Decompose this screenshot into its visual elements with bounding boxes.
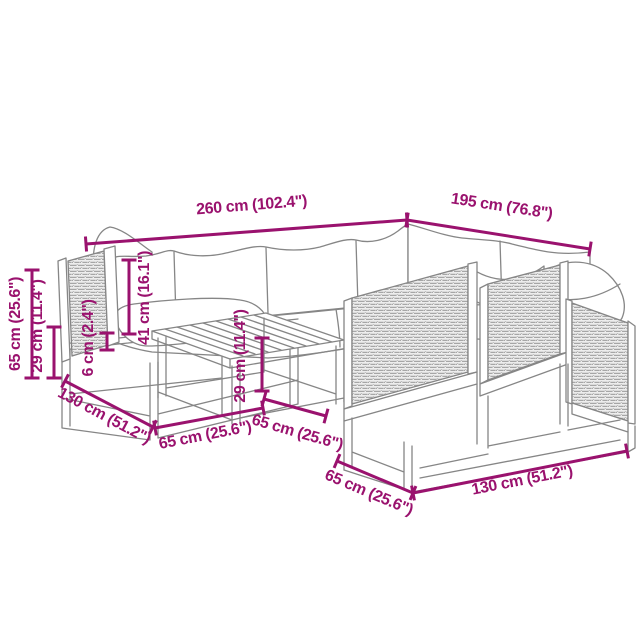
- table-depth-label: 65 cm (25.6"): [250, 412, 345, 454]
- total-depth-label: 195 cm (76.8"): [450, 190, 554, 222]
- table-depth-line: [264, 399, 326, 416]
- table-depth-tick-start: [262, 392, 266, 406]
- module-width-front-dimension: 65 cm (25.6"): [154, 401, 265, 453]
- total-height-label: 65 cm (25.6"): [7, 277, 24, 371]
- module-width-right-dimension: 130 cm (51.2"): [412, 444, 629, 501]
- product-dimension-diagram: 260 cm (102.4")195 cm (76.8")65 cm (25.6…: [0, 0, 640, 640]
- module-depth-right-dimension: 65 cm (25.6"): [322, 454, 416, 519]
- seat-frame-height-dimension: 29 cm (11.4"): [29, 279, 62, 378]
- total-width-tick-start: [85, 237, 86, 252]
- seat-frame-height-label: 29 cm (11.4"): [29, 279, 46, 372]
- right-module-a-post-left: [344, 298, 352, 409]
- seat-cushion-thickness-label: 6 cm (2.4"): [80, 299, 97, 376]
- table-height-label: 29 cm (11.4"): [232, 309, 249, 402]
- right-module-a-post-right: [468, 262, 477, 374]
- right-side-post-right: [628, 321, 635, 424]
- total-width-label: 260 cm (102.4"): [196, 193, 308, 219]
- table-depth-tick-end: [324, 409, 328, 423]
- right-module-b-post-left: [480, 284, 488, 384]
- diagram-canvas: 260 cm (102.4")195 cm (76.8")65 cm (25.6…: [0, 0, 640, 640]
- right-side-post-left: [566, 299, 572, 404]
- back-cushion-height-label: 41 cm (16.1"): [136, 251, 153, 345]
- total-depth-tick-end: [589, 242, 591, 257]
- right-side-rattan-panel: [572, 303, 628, 421]
- module-width-right-label: 130 cm (51.2"): [470, 462, 574, 498]
